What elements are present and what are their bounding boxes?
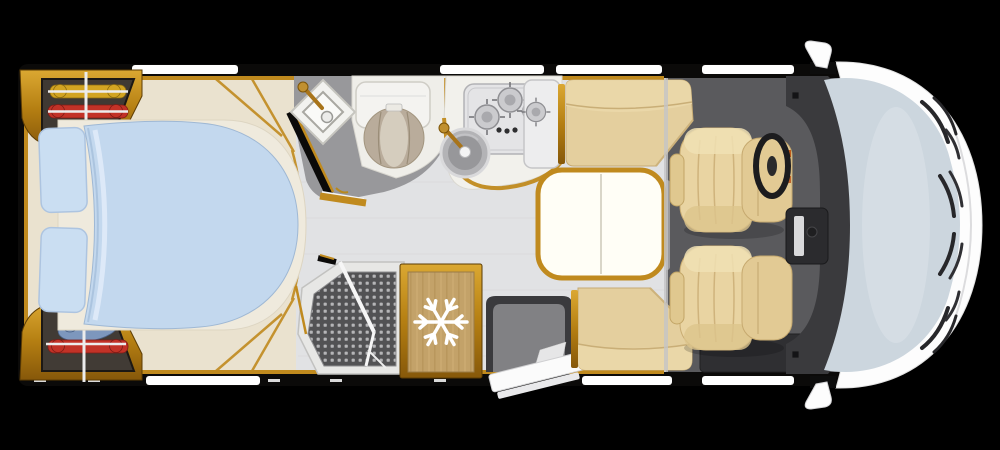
kitchen <box>439 76 562 189</box>
window-strip <box>702 376 794 385</box>
fridge <box>400 264 482 378</box>
cab-sill <box>664 78 668 372</box>
garment-red <box>48 340 128 354</box>
pillow <box>39 127 88 213</box>
faucet-knob <box>439 123 449 133</box>
window-strip <box>702 65 794 74</box>
dinette-table <box>538 170 670 278</box>
faucet-knob <box>298 82 308 92</box>
kitchen-side-cabinet <box>522 80 560 168</box>
window-strip <box>440 65 544 74</box>
pillow <box>39 227 88 313</box>
window-strip <box>582 376 672 385</box>
basin-drain <box>322 112 333 123</box>
passenger-seat <box>670 246 792 357</box>
steering-hub <box>767 156 777 176</box>
driver-seat <box>670 128 792 239</box>
window-strip <box>556 65 662 74</box>
toilet-hinge <box>386 104 402 111</box>
bench-trim <box>558 84 565 164</box>
windshield-glare <box>862 107 930 343</box>
duvet <box>84 121 298 328</box>
sink-sprayer <box>460 147 471 158</box>
island-bed <box>39 120 306 330</box>
floorplan-canvas <box>0 0 1000 450</box>
window-strip <box>146 376 260 385</box>
bench-trim <box>571 290 578 368</box>
center-console <box>786 208 828 264</box>
window-strip <box>132 65 238 74</box>
motorhome-floorplan <box>0 0 1000 450</box>
